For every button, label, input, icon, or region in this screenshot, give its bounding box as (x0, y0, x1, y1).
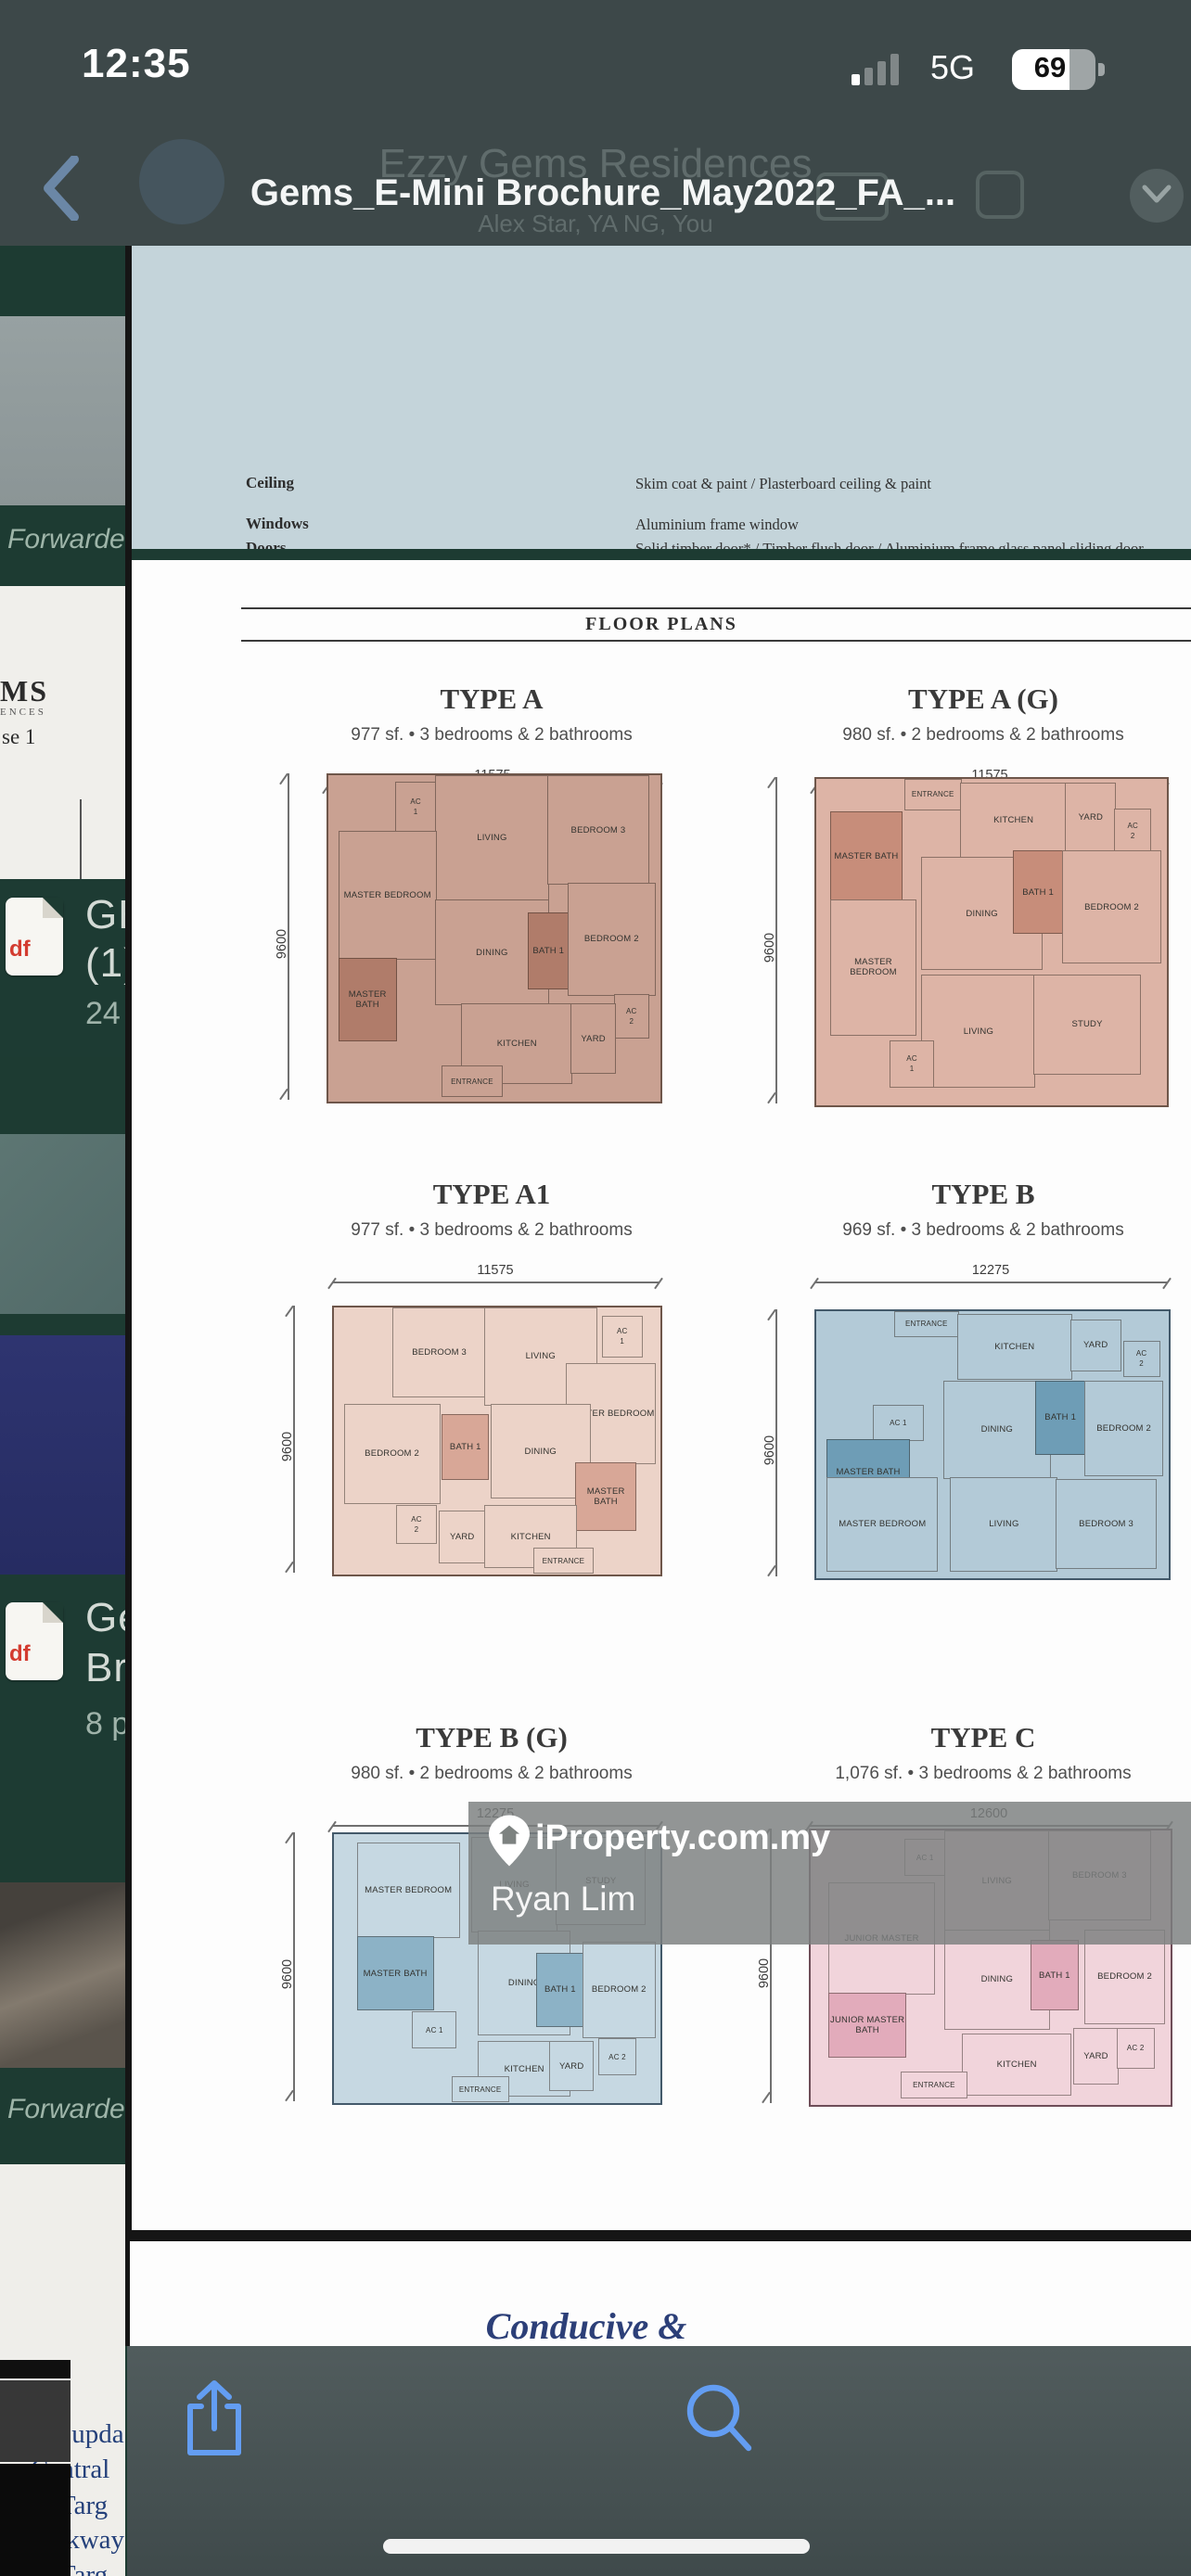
room-bath-1: BATH 1 (1031, 1940, 1079, 2010)
floorplan-canvas-type-b: ENTRANCEKITCHENYARDAC 2DININGBATH 1BEDRO… (814, 1309, 1171, 1580)
room-entrance: ENTRANCE (452, 2076, 509, 2102)
floorplan-type-b-g: TYPE B (G) (416, 1721, 568, 1754)
room-bedroom-2: BEDROOM 2 (344, 1404, 441, 1505)
floorplan-type-a-g: TYPE A (G) (908, 682, 1058, 716)
room-ac-2: AC 2 (1114, 809, 1151, 853)
attachment-name2: Broc (85, 1645, 125, 1691)
viewer-header: 12:35 5G 69 Ezzy Gems Residences Alex St… (0, 0, 1191, 246)
document-title: Gems_E-Mini Brochure_May2022_FA_... (102, 172, 1104, 214)
floorplan-type-c: TYPE C (931, 1721, 1036, 1754)
room-bedroom-2: BEDROOM 2 (1062, 850, 1162, 963)
floorplan-type-b: 969 sf. • 3 bedrooms & 2 bathrooms (842, 1220, 1123, 1241)
floorplan-type-b-g: 980 sf. • 2 bedrooms & 2 bathrooms (351, 1764, 632, 1784)
specifications-table: CeilingSkim coat & paint / Plasterboard … (132, 246, 1191, 549)
floorplan-type-a1: TYPE A1 (433, 1178, 551, 1211)
room-bath-1: BATH 1 (442, 1414, 489, 1480)
screen: Forwarded MS ENCES se 1 df GEM (1).p 24 … (0, 0, 1191, 2576)
room-master-bath: MASTER BATH (575, 1462, 635, 1531)
section-title: Conducive & (130, 2304, 1043, 2346)
share-icon (181, 2378, 248, 2458)
thumbnail-block (0, 2360, 70, 2378)
forwarded-label: Forwarded (7, 524, 125, 555)
room-ac-2: AC 2 (396, 1505, 437, 1544)
room-bedroom-3: BEDROOM 3 (392, 1307, 486, 1397)
room-yard: YARD (439, 1511, 486, 1563)
room-kitchen: KITCHEN (957, 1314, 1072, 1380)
room-bedroom-3: BEDROOM 3 (1056, 1479, 1156, 1569)
room-bath-1: BATH 1 (536, 1953, 583, 2027)
room-entrance: ENTRANCE (894, 1311, 959, 1337)
room-entrance: ENTRANCE (442, 1065, 503, 1097)
room-living: LIVING (950, 1477, 1057, 1573)
room-yard: YARD (1065, 783, 1116, 853)
floorplan-type-a-g: 980 sf. • 2 bedrooms & 2 bathrooms (842, 725, 1123, 746)
status-time: 12:35 (82, 41, 191, 87)
share-button[interactable] (181, 2378, 248, 2463)
photo-thumbnail (0, 316, 125, 505)
room-ac-2: AC 2 (598, 2038, 636, 2075)
room-ac-1: AC 1 (873, 1405, 924, 1441)
floorplan-type-a-g: 9600 (775, 777, 777, 1103)
pdf-file-icon: df (6, 1602, 63, 1680)
spec-label: Doors (246, 539, 617, 549)
floorplan-canvas-type-a1: BEDROOM 3LIVINGAC 1MASTER BEDROOMBEDROOM… (332, 1306, 662, 1576)
room-kitchen: KITCHEN (962, 2034, 1071, 2096)
room-yard: YARD (549, 2041, 594, 2091)
doc-preview-text2: se 1 (2, 725, 35, 749)
room-master-bedroom: MASTER BEDROOM (830, 899, 916, 1035)
room-ac-1: AC 1 (395, 782, 437, 833)
search-button[interactable] (684, 2381, 754, 2458)
network-type: 5G (930, 48, 975, 87)
floorplan-type-a: 9600 (288, 773, 289, 1100)
chat-background-strip: Forwarded MS ENCES se 1 df GEM (1).p 24 … (0, 246, 125, 2576)
attachment-pages: 8 pag (85, 1706, 125, 1742)
rule-line (241, 607, 1191, 609)
photo-thumbnail (0, 1134, 125, 1314)
room-kitchen: KITCHEN (960, 783, 1067, 860)
floorplan-type-a1: 9600 (293, 1306, 295, 1573)
viewer-toolbar (127, 2346, 1191, 2576)
room-master-bedroom: MASTER BEDROOM (339, 831, 437, 960)
spec-value: Aluminium frame window (635, 515, 1191, 534)
rule-line (241, 640, 1191, 642)
room-entrance: ENTRANCE (901, 2072, 967, 2098)
floorplan-canvas-type-a-g: ENTRANCEKITCHENYARDAC 2MASTER BATHDINING… (814, 777, 1169, 1107)
battery-cap (1098, 63, 1105, 76)
chevron-down-icon (1142, 185, 1172, 205)
spec-label: Ceiling (246, 474, 617, 492)
signal-icon (852, 54, 924, 85)
room-ac-1: AC 1 (890, 1040, 933, 1088)
room-junior-master-bath: JUNIOR MASTER BATH (828, 1993, 905, 2058)
room-entrance: ENTRANCE (533, 1548, 594, 1574)
spec-value: Solid timber door* / Timber flush door /… (635, 539, 1191, 549)
attachment-name: Gen (85, 1595, 125, 1641)
document-preview: MS ENCES se 1 (0, 586, 125, 879)
floorplan-type-a: TYPE A (440, 682, 543, 716)
room-bedroom-2: BEDROOM 2 (1084, 1381, 1164, 1476)
room-bath-1: BATH 1 (528, 912, 570, 989)
room-master-bath: MASTER BATH (357, 1936, 434, 2010)
room-bath-1: BATH 1 (1013, 850, 1064, 934)
doc-preview-smalltext: ENCES (0, 707, 46, 718)
watermark: iProperty.com.my Ryan Lim (468, 1802, 1191, 1945)
home-indicator[interactable] (383, 2539, 810, 2554)
floor-plans-heading: FLOOR PLANS (132, 614, 1191, 635)
room-master-bath: MASTER BATH (830, 811, 903, 901)
pdf-file-icon: df (6, 898, 63, 976)
floor-plans-page: FLOOR PLANS TYPE A977 sf. • 3 bedrooms &… (132, 560, 1191, 2230)
room-bedroom-3: BEDROOM 3 (547, 775, 648, 885)
floorplan-type-b-g: 9600 (293, 1832, 295, 2101)
photo-thumbnail-mountain (0, 1882, 125, 2068)
forwarded-label: Forwarded (7, 2094, 125, 2125)
battery-icon: 69 (1012, 49, 1095, 90)
room-yard: YARD (570, 1003, 616, 1074)
back-button[interactable] (41, 156, 96, 221)
floorplan-type-a1: 11575 (332, 1282, 659, 1283)
room-yard: YARD (1070, 1320, 1121, 1372)
attachment-name2: (1).p (85, 940, 125, 987)
room-bedroom-2: BEDROOM 2 (583, 1942, 656, 2038)
room-entrance: ENTRANCE (904, 779, 962, 810)
room-bedroom-2: BEDROOM 2 (568, 883, 656, 996)
room-ac-1: AC 1 (412, 2011, 456, 2048)
room-study: STUDY (1033, 975, 1140, 1075)
doc-preview-text: MS (0, 674, 48, 708)
floorplan-type-b: 12275 (814, 1282, 1167, 1283)
spec-value: Skim coat & paint / Plasterboard ceiling… (635, 474, 1191, 493)
floorplan-canvas-type-a: AC 1LIVINGBEDROOM 3MASTER BEDROOMDININGB… (327, 773, 662, 1103)
room-bath-1: BATH 1 (1035, 1381, 1086, 1455)
pdf-attachment: df Gen Broc 8 pag (0, 1575, 125, 1790)
thumbnail-block (0, 2380, 70, 2462)
watermark-brand: iProperty.com.my (535, 1818, 830, 1858)
search-icon (684, 2381, 754, 2454)
floorplan-type-a: 977 sf. • 3 bedrooms & 2 bathrooms (351, 725, 632, 746)
room-yard: YARD (1073, 2028, 1119, 2085)
room-living: LIVING (921, 975, 1035, 1088)
page-divider (130, 2230, 1191, 2241)
room-ac-2: AC 2 (1123, 1341, 1160, 1377)
floorplan-type-b: 9600 (775, 1309, 777, 1576)
iproperty-pin-icon (489, 1815, 530, 1867)
attachment-name: GEM (85, 892, 125, 938)
page-edge-bar (125, 246, 132, 2346)
room-ac-2: AC 2 (1117, 2028, 1155, 2068)
watermark-user: Ryan Lim (491, 1880, 635, 1919)
floorplan-type-b: TYPE B (931, 1178, 1034, 1211)
floorplan-type-c: 1,076 sf. • 3 bedrooms & 2 bathrooms (835, 1764, 1131, 1784)
room-master-bath: MASTER BATH (339, 958, 397, 1041)
pdf-attachment: df GEM (1).p 24 pa (0, 879, 125, 1057)
photo-thumbnail (0, 1335, 125, 1575)
floorplan-type-a1: 977 sf. • 3 bedrooms & 2 bathrooms (351, 1220, 632, 1241)
room-master-bedroom: MASTER BEDROOM (826, 1477, 938, 1573)
room-ac-2: AC 2 (614, 994, 649, 1039)
doc-preview-line (80, 799, 82, 879)
room-master-bedroom: MASTER BEDROOM (357, 1843, 460, 1939)
room-ac-1: AC 1 (602, 1316, 643, 1358)
next-pdf-page: Conducive & (130, 2241, 1191, 2346)
attachment-pages: 24 pa (85, 996, 125, 1032)
collapse-button[interactable] (1130, 169, 1184, 223)
spec-label: Windows (246, 515, 617, 533)
thumbnail-block (0, 2464, 70, 2576)
room-living: LIVING (435, 775, 550, 901)
